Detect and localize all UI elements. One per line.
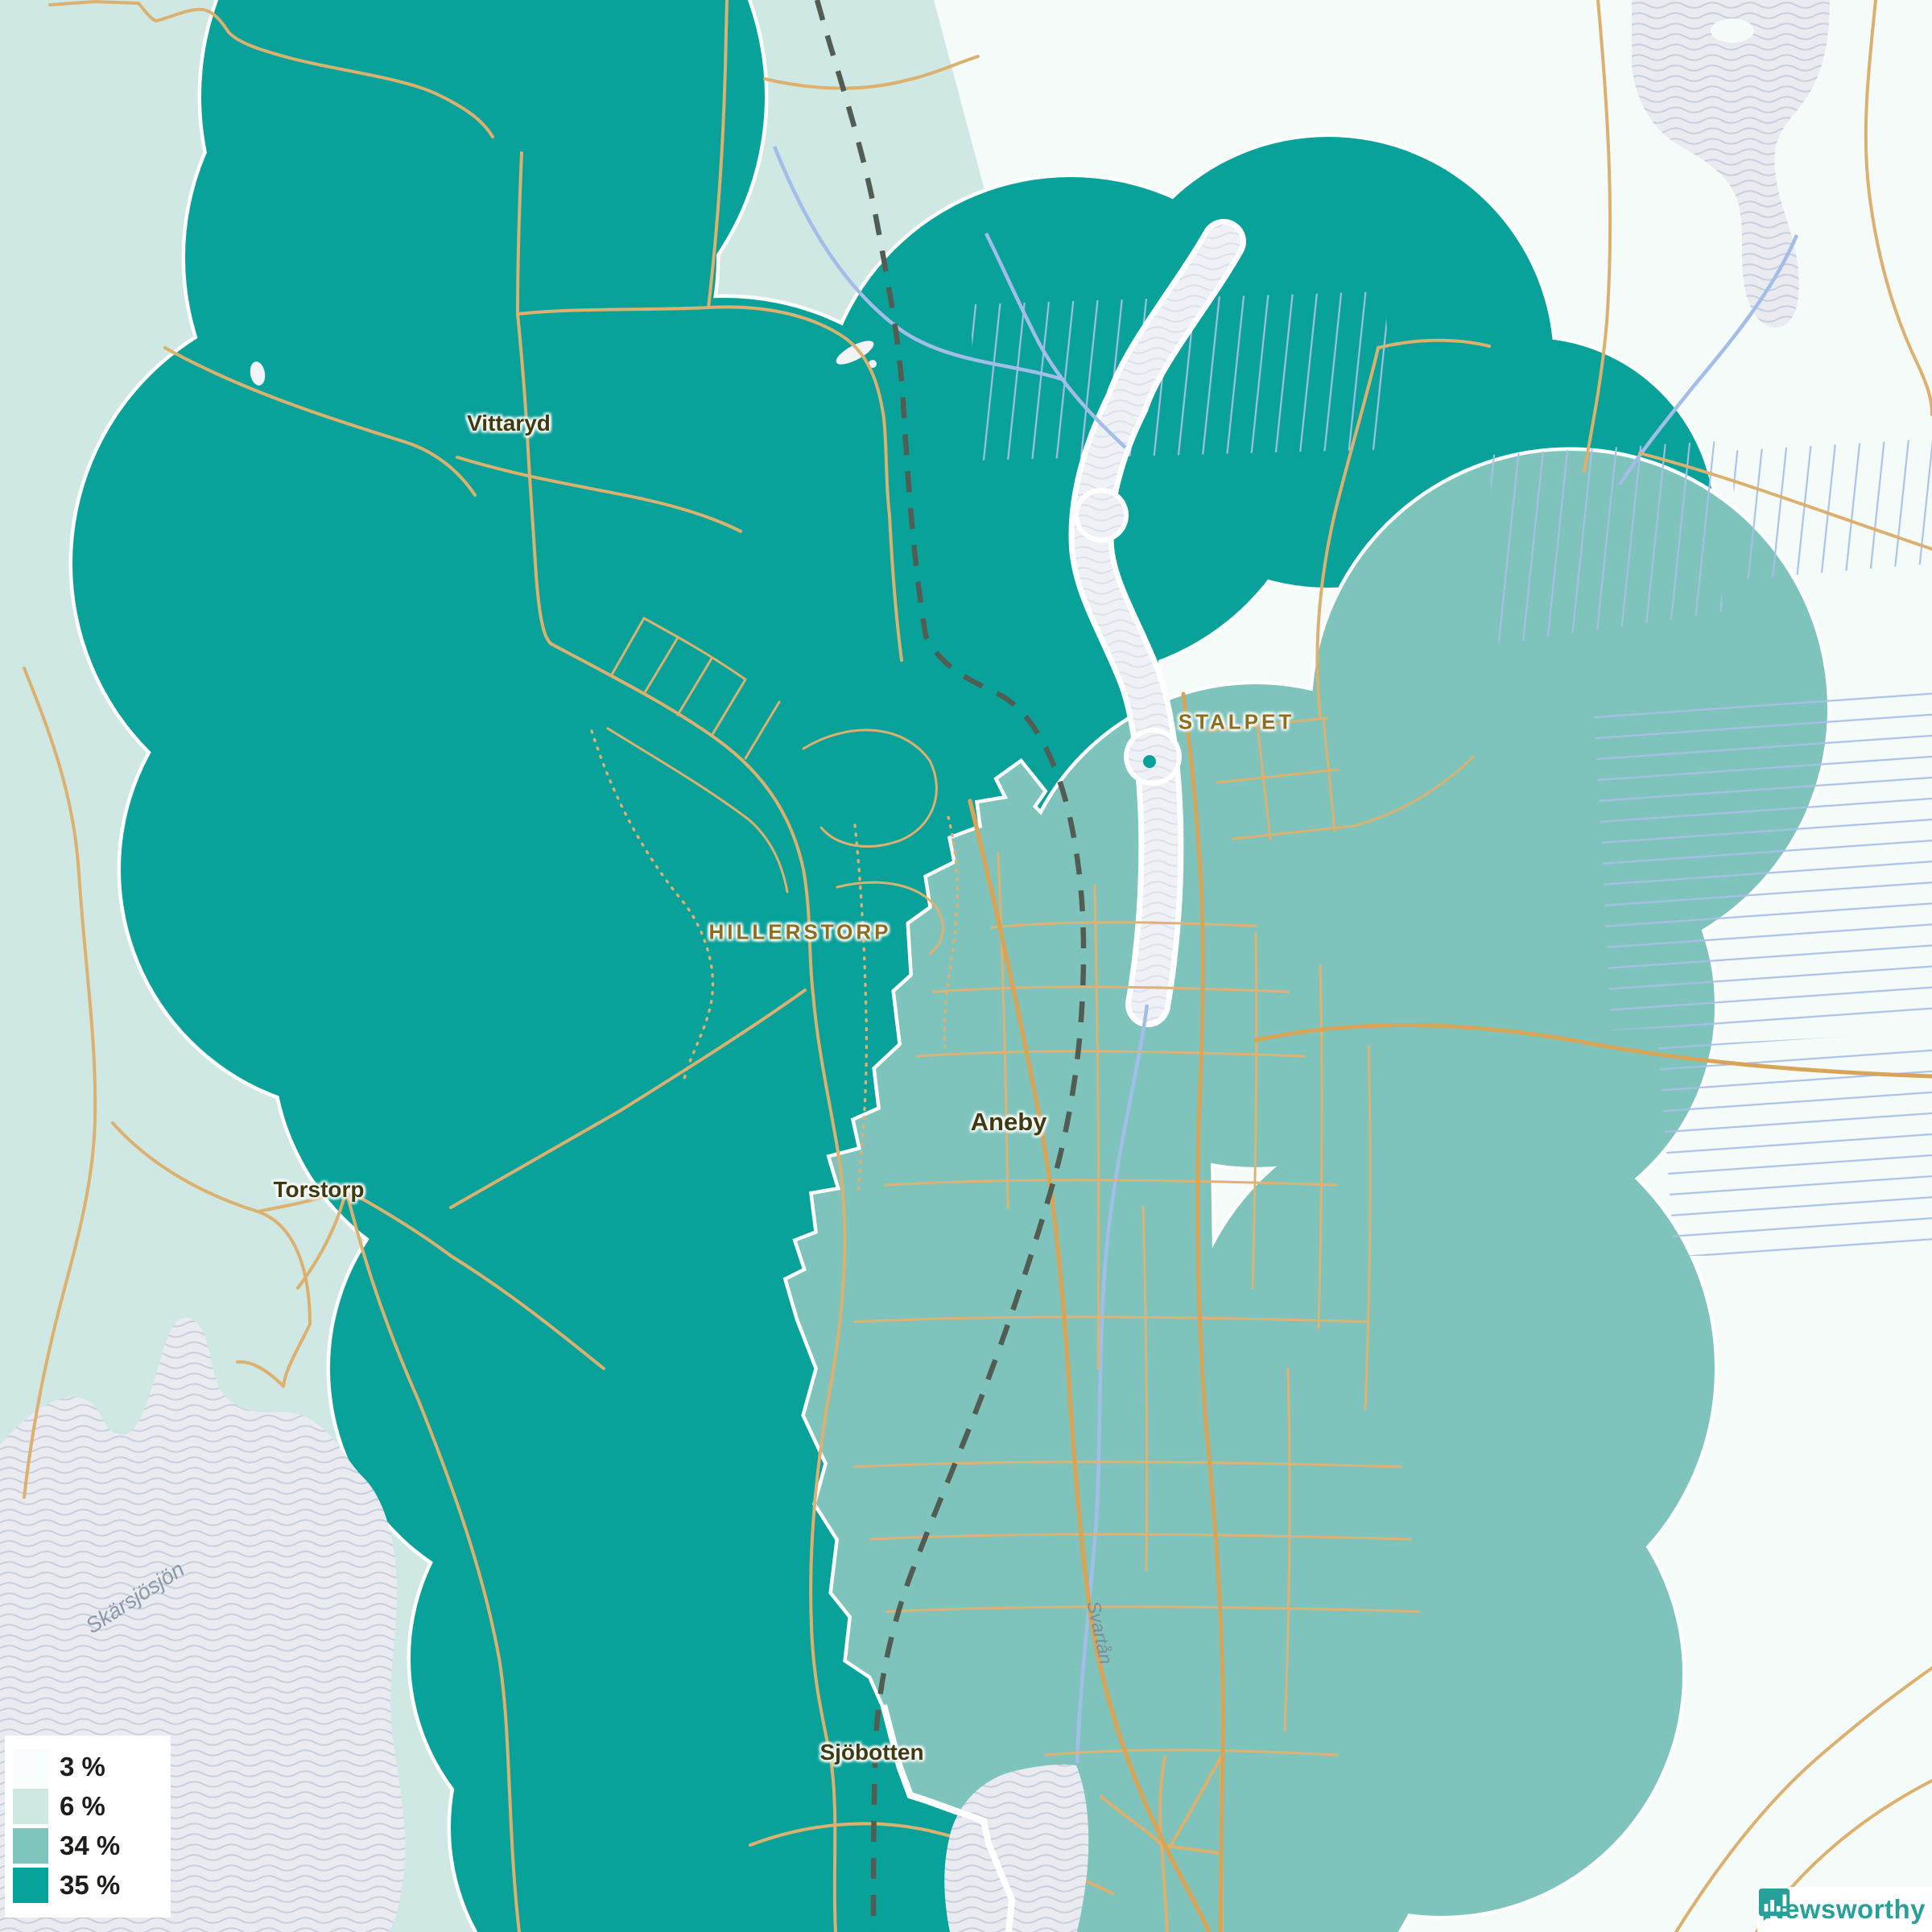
legend-row: 3 % bbox=[13, 1747, 171, 1786]
legend-swatch-35pct bbox=[13, 1868, 48, 1903]
bar-chart-badge-icon bbox=[1757, 1887, 1791, 1921]
legend-swatch-3pct bbox=[13, 1749, 48, 1785]
legend-label: 34 % bbox=[60, 1831, 120, 1861]
legend-row: 34 % bbox=[13, 1826, 171, 1865]
legend-label: 3 % bbox=[60, 1752, 105, 1782]
legend-row: 35 % bbox=[13, 1865, 171, 1905]
legend-label: 35 % bbox=[60, 1870, 120, 1901]
legend-swatch-6pct bbox=[13, 1789, 48, 1824]
legend-row: 6 % bbox=[13, 1786, 171, 1826]
legend: 3 % 6 % 34 % 35 % bbox=[5, 1736, 171, 1918]
legend-swatch-34pct bbox=[13, 1828, 48, 1864]
attribution: Newsworthy bbox=[1757, 1887, 1932, 1932]
legend-label: 6 % bbox=[60, 1791, 105, 1822]
map-canvas bbox=[0, 0, 1932, 1932]
map-screenshot: Vittaryd Torstorp Aneby Sjöbotten HILLER… bbox=[0, 0, 1932, 1932]
